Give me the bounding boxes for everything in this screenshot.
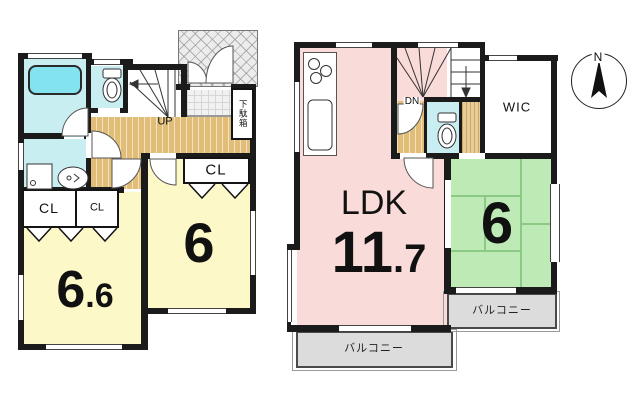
tatami-size: 6 xyxy=(481,195,513,253)
floorplan-canvas: 下駄箱 UP CL CL CL 6 6.6 xyxy=(0,0,640,404)
wic-label: WIC xyxy=(503,101,531,114)
storage-2f xyxy=(462,101,480,154)
stove-icon xyxy=(305,55,335,87)
compass: N xyxy=(568,48,632,112)
tatami-line xyxy=(520,223,551,225)
window xyxy=(489,55,517,61)
door-arc xyxy=(404,158,433,188)
window xyxy=(287,250,292,322)
window xyxy=(294,82,300,152)
door-opening xyxy=(459,153,485,159)
second-floor-plan: DN WIC LDK 11.7 6 バルコニー バルコニー xyxy=(0,0,640,404)
balcony-tatami-label: バルコニー xyxy=(472,306,532,317)
down-label: DN xyxy=(404,97,420,107)
ldk-label: LDK xyxy=(341,186,407,220)
balcony-ldk-label: バルコニー xyxy=(344,344,404,355)
window xyxy=(550,184,560,262)
kitchen-sink-icon xyxy=(306,98,334,152)
ldk-size-int: 11 xyxy=(332,220,393,285)
door-arc xyxy=(398,104,423,134)
ldk-size: 11.7 xyxy=(332,224,427,282)
wall xyxy=(424,102,427,154)
ldk-size-dec: .7 xyxy=(393,237,426,281)
wall xyxy=(424,97,483,102)
sliding-opening xyxy=(445,180,451,248)
toilet-icon xyxy=(435,112,459,150)
window xyxy=(456,287,516,294)
staircase-icon xyxy=(397,48,480,97)
wall xyxy=(459,102,462,154)
window xyxy=(336,42,372,48)
north-label: N xyxy=(592,51,605,63)
window xyxy=(339,325,411,332)
north-arrow-icon xyxy=(587,60,611,104)
